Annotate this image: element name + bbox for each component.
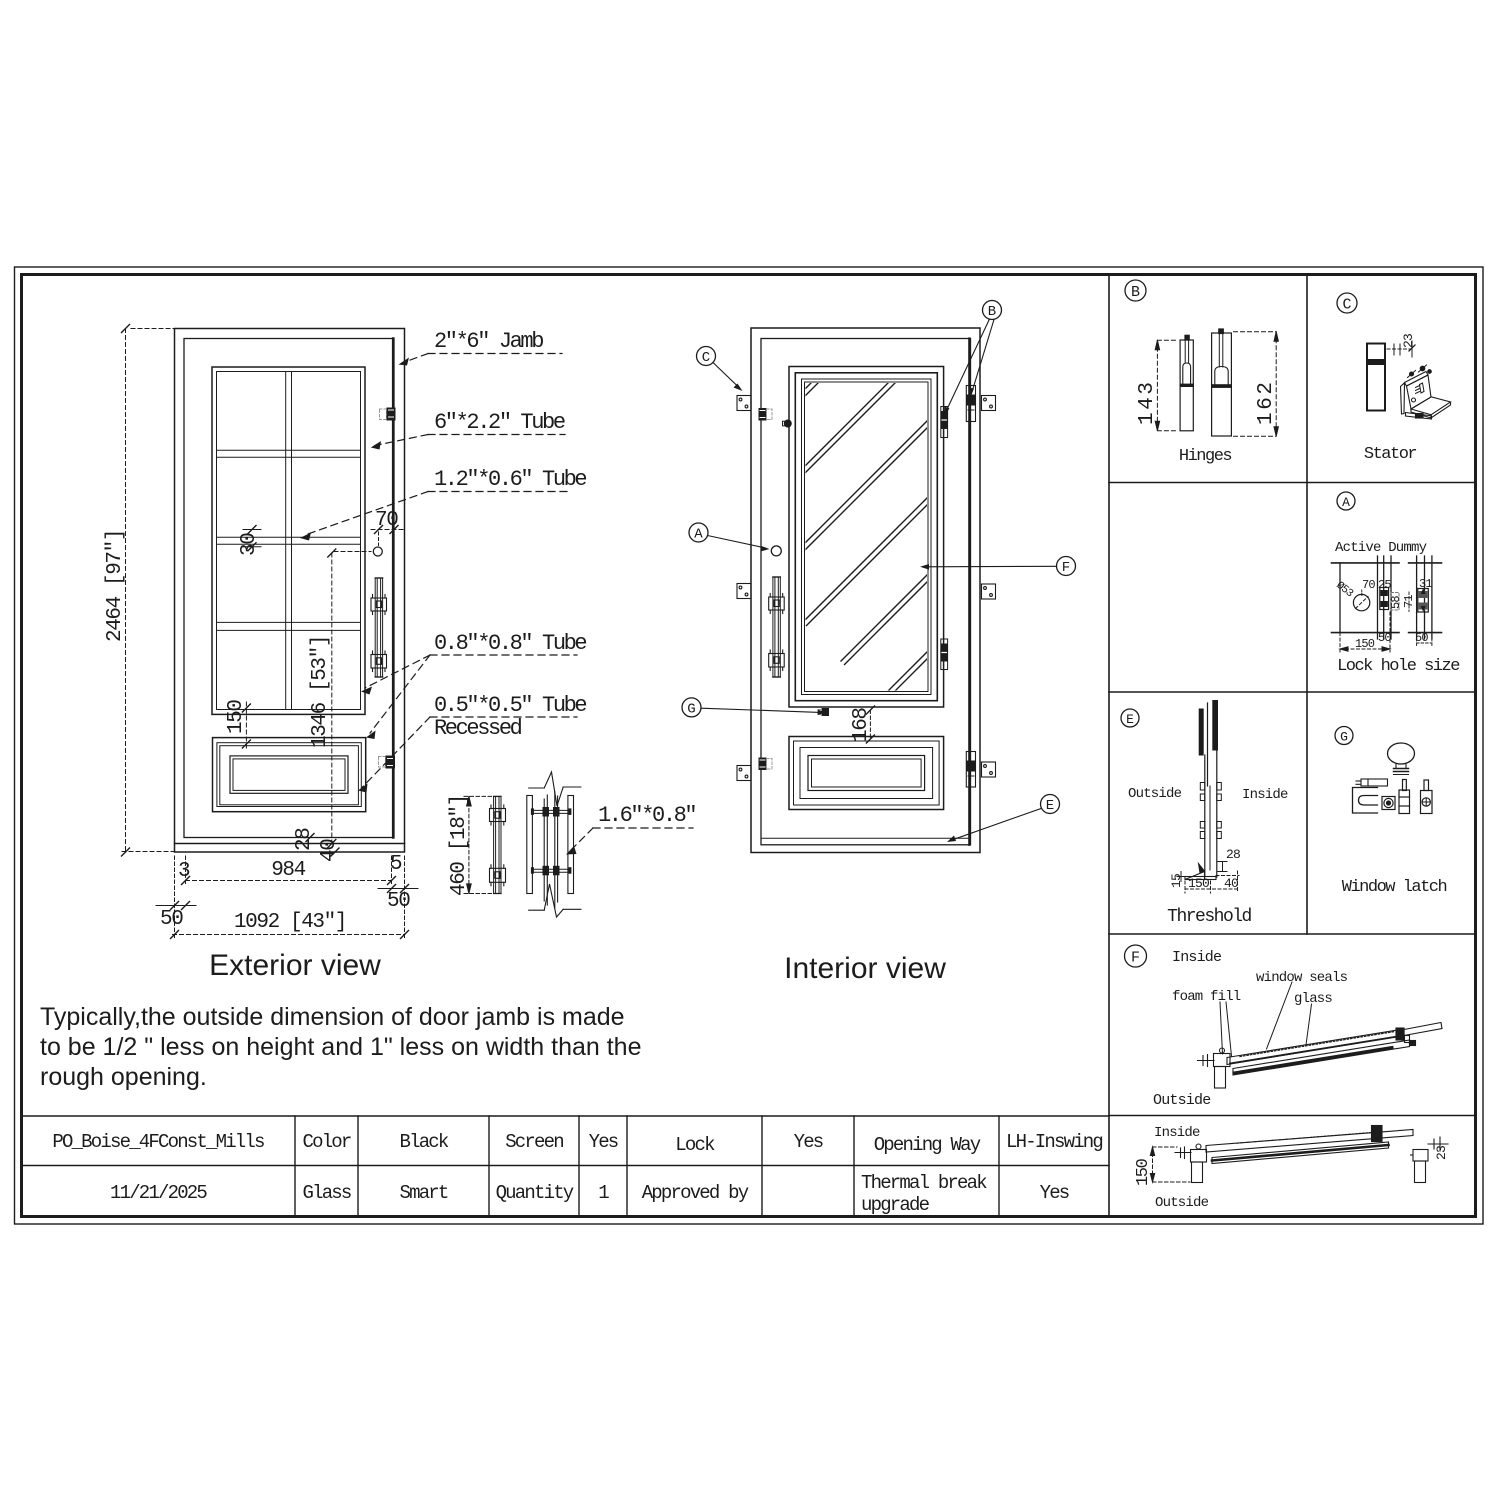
svg-text:50: 50 <box>387 890 410 913</box>
svg-text:Threshold: Threshold <box>1167 907 1251 927</box>
svg-text:C: C <box>1342 297 1351 314</box>
svg-text:Yes: Yes <box>794 1131 823 1153</box>
svg-text:150: 150 <box>1355 637 1375 651</box>
svg-text:25: 25 <box>1378 578 1391 592</box>
svg-text:28: 28 <box>293 828 316 851</box>
svg-text:B: B <box>988 304 996 320</box>
svg-text:168: 168 <box>850 708 873 742</box>
svg-text:glass: glass <box>1294 991 1332 1007</box>
svg-text:Stator: Stator <box>1364 445 1417 464</box>
svg-text:Color: Color <box>302 1131 350 1153</box>
svg-text:foam fill: foam fill <box>1172 989 1241 1005</box>
svg-text:E: E <box>1046 798 1054 814</box>
svg-text:Inside: Inside <box>1172 949 1222 966</box>
svg-text:Window latch: Window latch <box>1342 878 1447 897</box>
svg-text:Black: Black <box>399 1131 448 1153</box>
svg-text:150: 150 <box>225 700 248 734</box>
svg-text:1: 1 <box>598 1182 609 1204</box>
svg-text:A: A <box>694 527 703 543</box>
svg-text:Recessed: Recessed <box>434 716 522 741</box>
svg-text:B: B <box>1131 284 1140 301</box>
svg-text:Approved by: Approved by <box>642 1182 749 1204</box>
svg-text:23: 23 <box>1401 334 1416 348</box>
svg-text:50: 50 <box>160 908 183 931</box>
svg-text:Quantity: Quantity <box>496 1182 574 1204</box>
svg-text:28: 28 <box>1226 847 1240 862</box>
svg-text:23: 23 <box>1434 1146 1449 1160</box>
svg-text:50: 50 <box>1378 631 1391 645</box>
svg-text:30: 30 <box>238 533 261 556</box>
svg-text:70: 70 <box>1362 578 1375 592</box>
svg-text:Lock hole size: Lock hole size <box>1337 657 1460 676</box>
svg-text:Yes: Yes <box>1040 1182 1069 1204</box>
svg-text:Lock: Lock <box>675 1134 715 1156</box>
svg-text:Glass: Glass <box>302 1182 350 1204</box>
svg-text:Typically,the outside dimensio: Typically,the outside dimension of door … <box>40 1003 625 1031</box>
svg-text:2464 [97″]: 2464 [97″] <box>104 530 127 642</box>
svg-text:Yes: Yes <box>589 1131 618 1153</box>
svg-text:Outside: Outside <box>1128 786 1182 802</box>
svg-text:1.2″*0.6″ Tube: 1.2″*0.6″ Tube <box>434 467 586 492</box>
svg-text:C: C <box>702 350 710 366</box>
svg-text:PO_Boise_4FConst_Mills: PO_Boise_4FConst_Mills <box>52 1131 264 1153</box>
svg-text:143: 143 <box>1136 379 1159 425</box>
svg-text:rough opening.: rough opening. <box>40 1063 207 1091</box>
svg-text:to be 1/2 " less on height and: to be 1/2 " less on height and 1" less o… <box>40 1033 642 1061</box>
svg-text:G: G <box>1340 730 1348 745</box>
svg-text:3: 3 <box>178 860 190 883</box>
svg-text:upgrade: upgrade <box>861 1194 930 1216</box>
svg-text:1092 [43″]: 1092 [43″] <box>234 911 346 934</box>
svg-text:Active Dummy: Active Dummy <box>1335 540 1427 556</box>
svg-text:Outside: Outside <box>1153 1092 1211 1109</box>
svg-text:Smart: Smart <box>399 1182 447 1204</box>
svg-text:11/21/2025: 11/21/2025 <box>110 1182 207 1204</box>
svg-text:1346 [53″]: 1346 [53″] <box>309 636 332 748</box>
svg-text:Inside: Inside <box>1242 787 1288 803</box>
svg-text:A: A <box>1342 495 1350 510</box>
svg-text:162: 162 <box>1255 379 1278 425</box>
svg-text:984: 984 <box>271 859 305 882</box>
svg-text:31: 31 <box>1419 577 1432 591</box>
svg-text:Opening Way: Opening Way <box>874 1134 981 1156</box>
svg-text:40: 40 <box>1224 876 1238 891</box>
svg-text:460 [18″]: 460 [18″] <box>448 795 471 896</box>
svg-text:G: G <box>687 701 695 717</box>
svg-text:Interior view: Interior view <box>784 952 946 985</box>
svg-text:Inside: Inside <box>1154 1125 1200 1141</box>
svg-text:6″*2.2″ Tube: 6″*2.2″ Tube <box>434 410 565 435</box>
svg-text:150: 150 <box>1134 1158 1153 1186</box>
svg-text:Exterior view: Exterior view <box>209 949 381 982</box>
svg-text:Outside: Outside <box>1155 1195 1209 1211</box>
svg-text:Hinges: Hinges <box>1179 447 1232 466</box>
svg-text:0.5″*0.5″ Tube: 0.5″*0.5″ Tube <box>434 693 586 718</box>
svg-text:58: 58 <box>1389 596 1403 609</box>
svg-text:F: F <box>1062 560 1070 576</box>
svg-text:15: 15 <box>1169 874 1184 888</box>
svg-text:window seals: window seals <box>1256 970 1348 986</box>
svg-text:150: 150 <box>1188 876 1209 891</box>
svg-text:Screen: Screen <box>505 1131 563 1153</box>
svg-text:1.6″*0.8″: 1.6″*0.8″ <box>598 803 695 828</box>
svg-text:Thermal break: Thermal break <box>861 1172 987 1194</box>
svg-text:0.8″*0.8″ Tube: 0.8″*0.8″ Tube <box>434 631 586 656</box>
svg-text:E: E <box>1126 712 1134 727</box>
svg-text:LH-Inswing: LH-Inswing <box>1006 1131 1102 1153</box>
svg-text:F: F <box>1131 950 1140 967</box>
svg-text:2″*6″ Jamb: 2″*6″ Jamb <box>434 329 543 354</box>
svg-text:5: 5 <box>390 853 402 876</box>
